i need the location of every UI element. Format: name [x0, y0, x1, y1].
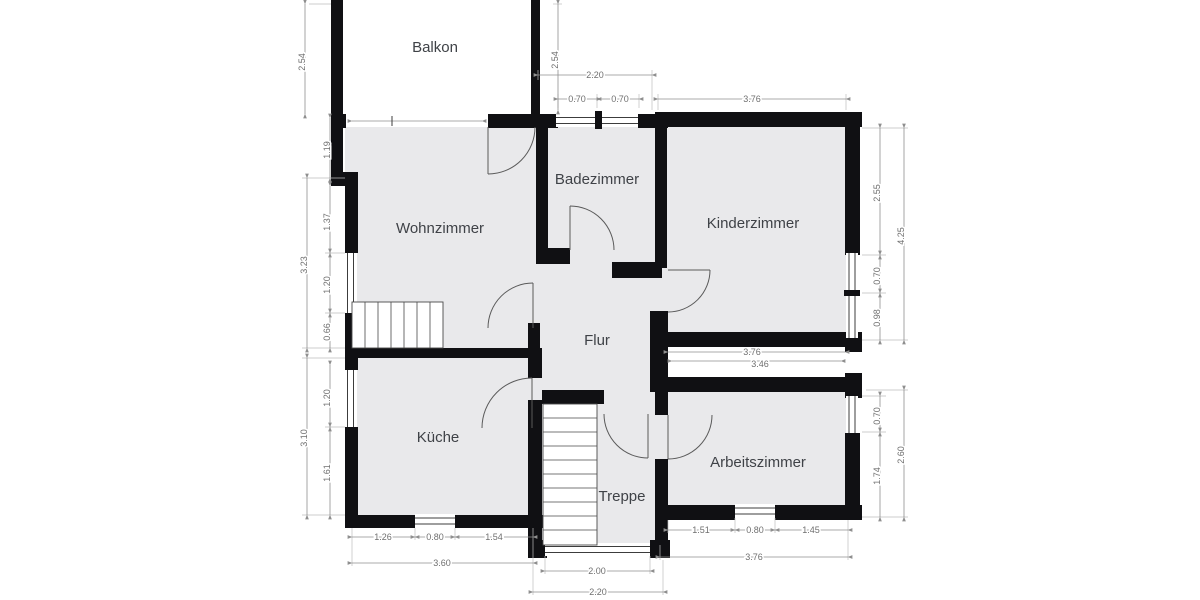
dim-bad-window2: 0.70 — [611, 94, 629, 104]
dim-left-total: 3.23 — [299, 256, 309, 274]
dim-arbeits-right-total: 2.60 — [896, 446, 906, 464]
dim-kinder-right-seg: 2.55 — [872, 184, 882, 202]
dim-kinder-right-win2: 0.98 — [872, 309, 882, 327]
dim-bad-window1: 0.70 — [568, 94, 586, 104]
dim-left-lower-total: 3.10 — [299, 429, 309, 447]
dim-left-window: 1.20 — [322, 276, 332, 294]
room-label-treppe: Treppe — [599, 488, 646, 505]
room-label-kueche: Küche — [417, 429, 460, 446]
room-label-wohnzimmer: Wohnzimmer — [396, 220, 484, 237]
staircase-treppe — [543, 404, 597, 545]
room-label-flur: Flur — [584, 332, 610, 349]
dim-left-seg3: 0.66 — [322, 323, 332, 341]
dim-arbeits-bottom-win: 0.80 — [746, 525, 764, 535]
dim-arbeits-bottom-total: 3.76 — [745, 552, 763, 562]
dim-arbeits-bottom-seg2: 1.45 — [802, 525, 820, 535]
dim-treppe-bottom-total: 2.20 — [589, 587, 607, 597]
dim-mid-gap-lower: 3.46 — [751, 359, 769, 369]
dim-arbeits-right-seg: 1.74 — [872, 467, 882, 485]
dim-kueche-bottom-total: 3.60 — [433, 558, 451, 568]
dim-kueche-bottom-seg1: 1.26 — [374, 532, 392, 542]
dim-kinder-top-width: 3.76 — [743, 94, 761, 104]
room-label-badezimmer: Badezimmer — [555, 171, 639, 188]
dim-kueche-bottom-seg2: 1.54 — [485, 532, 503, 542]
dim-bad-top-width: 2.20 — [586, 70, 604, 80]
room-label-arbeitszimmer: Arbeitszimmer — [710, 454, 806, 471]
dim-treppe-bottom-inner: 2.00 — [588, 566, 606, 576]
floorplan-canvas: 2.54 1.19 1.37 1.20 0.66 3.23 1.20 1.61 … — [0, 0, 1200, 600]
dim-kinder-right-total: 4.25 — [896, 227, 906, 245]
dim-kinder-right-win1: 0.70 — [872, 267, 882, 285]
room-label-kinderzimmer: Kinderzimmer — [707, 215, 800, 232]
staircase-wohnzimmer — [352, 302, 443, 348]
dim-mid-gap-upper: 3.76 — [743, 347, 761, 357]
dim-kueche-bottom-win: 0.80 — [426, 532, 444, 542]
dim-arbeits-right-win: 0.70 — [872, 407, 882, 425]
dim-balkon-right: 2.54 — [550, 51, 560, 69]
dim-left-seg1: 1.19 — [322, 141, 332, 159]
dim-left-seg2: 1.37 — [322, 213, 332, 231]
room-label-balkon: Balkon — [412, 39, 458, 56]
dim-balkon-left: 2.54 — [297, 53, 307, 71]
dim-left-lower-window: 1.20 — [322, 389, 332, 407]
dim-left-lower-seg: 1.61 — [322, 464, 332, 482]
floorplan-page: 2.54 1.19 1.37 1.20 0.66 3.23 1.20 1.61 … — [0, 0, 1200, 600]
dim-arbeits-bottom-seg1: 1.51 — [692, 525, 710, 535]
